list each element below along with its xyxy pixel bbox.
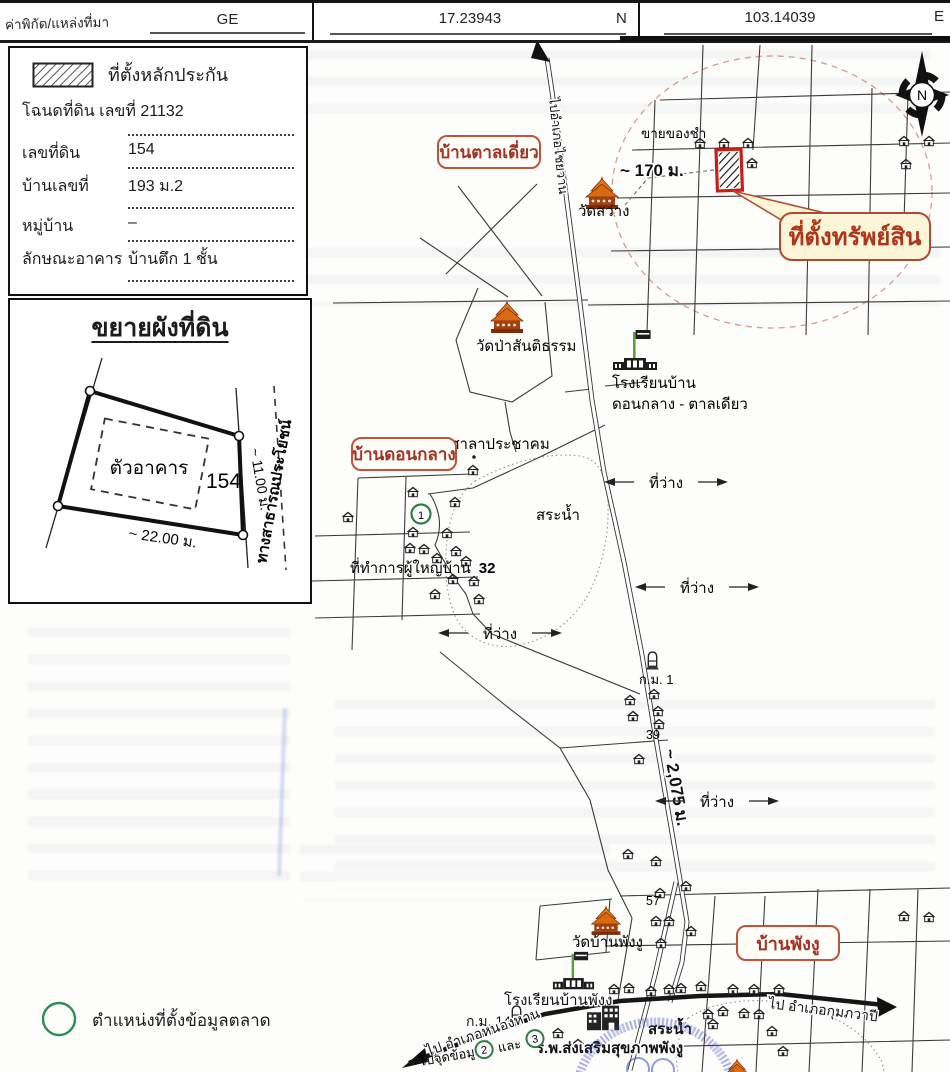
grocery-label: ขายของชำ [641,126,706,141]
market-data-circle-icon [40,1000,80,1040]
house-icon [408,528,419,537]
collateral-info-box: ที่ตั้งหลักประกัน โฉนดที่ดิน เลขที่ 2113… [8,46,308,296]
field-value: 154 [128,141,294,169]
property-marker [716,149,742,191]
school2-label: โรงเรียนบ้านพังงู [504,991,612,1009]
datapoint-1: 1 [412,505,431,524]
house-icon [708,1020,719,1029]
boundary-pin [235,432,244,441]
swatch-label: ที่ตั้งหลักประกัน [108,60,228,89]
plot-diagram: ตัวอาคาร 154 ~ 22.00 ม. ~ 11.00 ม. ทางสา… [10,300,306,598]
house-icon [719,139,730,148]
house-icon [749,985,760,994]
house-icon [651,857,662,866]
house-icon [651,917,662,926]
house-icon [405,544,416,553]
longitude-hemisphere: E [934,8,944,25]
boundary-pin [239,531,248,540]
field-row: ลักษณะอาคาร บ้านตึก 1 ชั้น [22,247,294,282]
svg-text:ที่ว่าง: ที่ว่าง [700,791,734,811]
temple-icon [491,300,523,333]
road-to-chaiwan-label: ไปอำเภอไชยวาน [546,96,571,195]
house-icon [899,137,910,146]
latitude-hemisphere: N [616,10,627,27]
house-icon [696,982,707,991]
boundary-pin [54,502,63,511]
house-icon [924,137,935,146]
field-value: – [128,214,294,242]
compass-icon: N [895,51,949,137]
house-number-39: 39 [646,728,660,742]
pond-label: สระน้ำ [536,504,580,524]
house-icon [653,707,664,716]
svg-text:ที่ว่าง: ที่ว่าง [649,472,683,492]
house-icon [718,1007,729,1016]
house-icon [743,139,754,148]
community-hall-label: ศาลาประชาคม [450,436,550,453]
plot-detail-box: ขยายผังที่ดิน ตัวอาคาร 154 ~ 22.00 ม. ~ … [8,298,312,604]
underline [150,32,305,34]
field-label: หมู่บ้าน [22,214,128,242]
field-label: ลักษณะอาคาร [22,247,128,282]
distance-170m-label: ~ 170 ม. [620,161,684,180]
house-icon [450,498,461,507]
pond-outline [446,455,608,646]
village-label-taldiao: บ้านตาลเดี่ยว [438,136,540,168]
hatched-swatch-icon [32,62,94,88]
vacant-label: ที่ว่าง [635,577,759,597]
house-icon [408,488,419,497]
school1-label-line2: ดอนกลาง - ตาลเดียว [612,396,748,413]
school-icon [613,330,657,370]
road-arrow-north [531,40,550,62]
vacant-label: ที่ว่าง [438,623,562,643]
village-label-phangngu: บ้านพังงู [737,926,839,960]
svg-text:บ้านดอนกลาง: บ้านดอนกลาง [352,445,455,464]
building-label: ตัวอาคาร [110,458,189,479]
field-value: 193 ม.2 [128,174,294,209]
field-label: เลขที่ดิน [22,141,128,169]
hall-dot [472,455,476,459]
house-icon [474,595,485,604]
vacant-label: ที่ว่าง [604,472,728,492]
house-icon [924,913,935,922]
wat-ban-phangngu-label: วัดบ้านพังงู [572,934,643,951]
house-icon [343,513,354,522]
house-icon [739,1009,750,1018]
house-icon [625,696,636,705]
deed-number-line: โฉนดที่ดิน เลขที่ 21132 [22,99,294,124]
km-post-icon [646,652,659,669]
headman-office-label: ที่ทำการผู้ใหญ่บ้าน32 [350,557,495,577]
house-icon [728,985,739,994]
svg-text:ที่ว่าง: ที่ว่าง [680,577,714,597]
house-icon [628,712,639,721]
house-icon [468,466,479,475]
svg-text:ที่ว่าง: ที่ว่าง [483,623,517,643]
hospital-label: ร.พ.ส่งเสริมสุขภาพพังงู [536,1039,683,1058]
latitude-value: 17.23943 [360,10,580,27]
divider [312,3,314,40]
house-icons-layer [343,137,935,1056]
coordinates-header: ค่าพิกัด/แหล่งที่มา GE 17.23943 N 103.14… [0,0,950,43]
house-icon [767,1027,778,1036]
village-label-donklang: บ้านดอนกลาง [352,438,456,470]
divider [638,3,640,40]
house-icon [430,590,441,599]
house-icon [419,545,430,554]
header-rule [620,36,950,41]
wat-pa-label: วัดป่าสันติธรรม [476,338,576,355]
wat-sawang-label: วัดสว่าง [578,203,630,220]
field-row: หมู่บ้าน – [22,214,294,242]
house-icon [623,850,634,859]
field-value: บ้านตึก 1 ชั้น [128,247,294,282]
house-icon [553,1029,564,1038]
svg-text:N: N [917,87,927,103]
legend-label: ตำแหน่งที่ตั้งข้อมูลตลาด [92,1007,271,1034]
house-icon [451,547,462,556]
svg-text:1: 1 [418,510,424,522]
house-icon [442,529,453,538]
school1-label-line1: โรงเรียนบ้าน [612,374,696,392]
minor-roads [312,45,950,1072]
house-icon [899,912,910,921]
house-icon [469,577,480,586]
dotted-rule [128,124,294,136]
road-arrow-east [877,997,897,1017]
house-icon [703,1010,714,1019]
underline [330,33,626,35]
boundary-pin [86,387,95,396]
house-number-57: 57 [646,894,660,908]
field-row: เลขที่ดิน 154 [22,141,294,169]
temple-icon [592,905,621,935]
coordinates-label: ค่าพิกัด/แหล่งที่มา [5,11,110,36]
house-icon [634,755,645,764]
width-dimension: ~ 22.00 ม. [127,525,197,551]
parcel-number: 154 [206,470,241,493]
house-icon [747,159,758,168]
svg-text:และ: และ [497,1036,523,1055]
field-row: บ้านเลขที่ 193 ม.2 [22,174,294,209]
house-icon [624,984,635,993]
svg-text:บ้านพังงู: บ้านพังงู [756,934,819,956]
underline [664,33,932,35]
longitude-value: 103.14039 [680,9,880,26]
map-legend: ตำแหน่งที่ตั้งข้อมูลตลาด [40,1000,271,1040]
house-icon [774,985,785,994]
svg-text:บ้านตาลเดี่ยว: บ้านตาลเดี่ยว [439,140,538,162]
km1-label: ก.ม. 1 [639,672,674,687]
coordinate-source: GE [150,11,305,28]
house-icon [778,1047,789,1056]
field-label: บ้านเลขที่ [22,174,128,209]
hospital-icon [587,1006,619,1031]
